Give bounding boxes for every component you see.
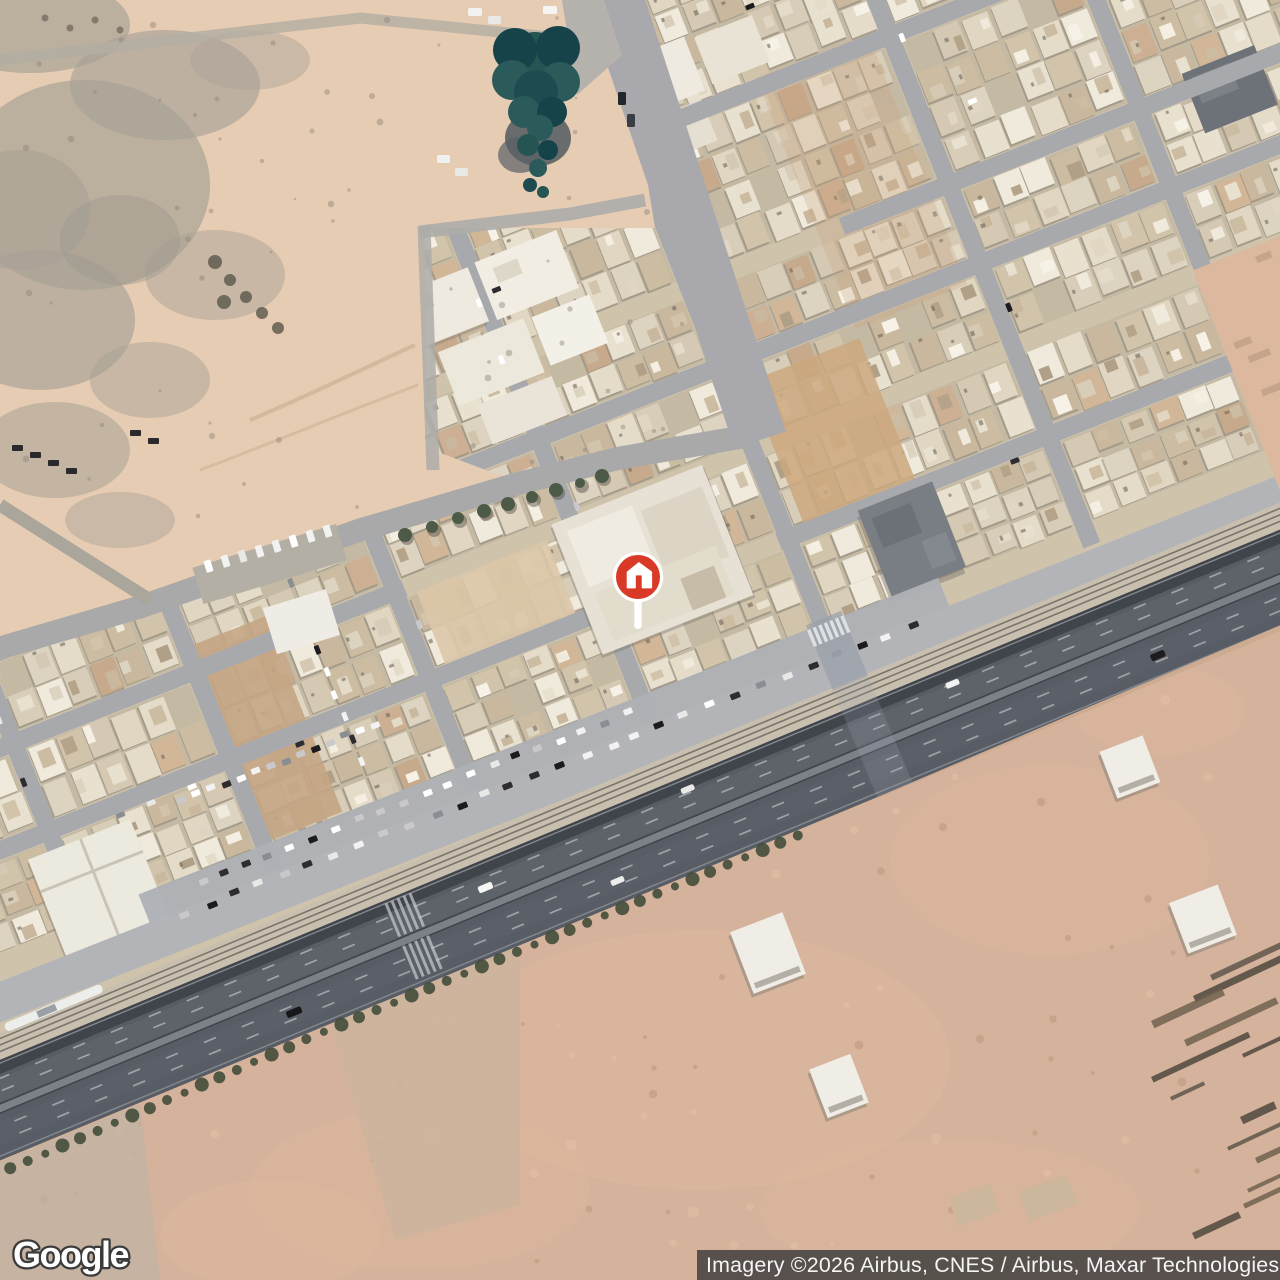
svg-text:Google: Google [13, 1234, 128, 1275]
svg-text:Imagery ©2026 Airbus, CNES / A: Imagery ©2026 Airbus, CNES / Airbus, Max… [706, 1253, 1279, 1277]
